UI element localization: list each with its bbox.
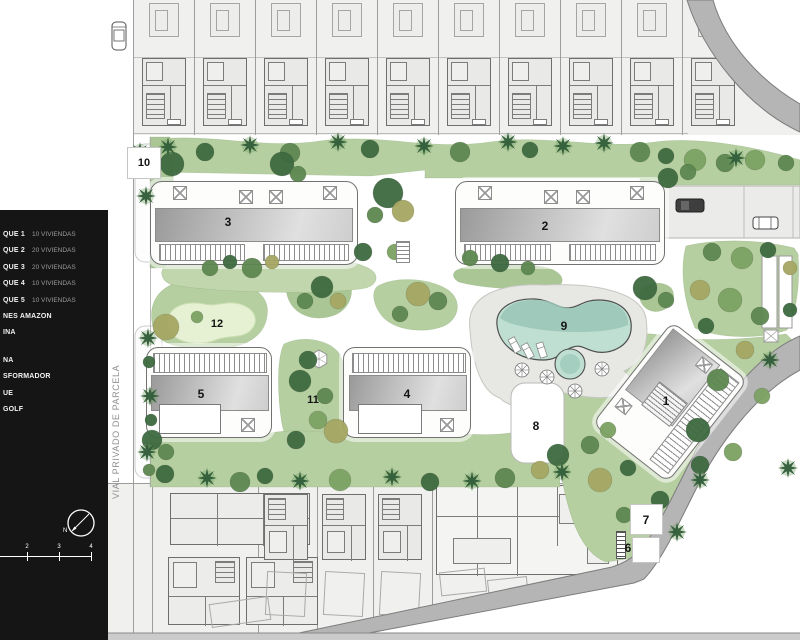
tree-icon [324,419,348,443]
tree-icon [707,369,729,391]
stairs-icon [396,241,410,263]
palm-icon [197,468,217,488]
tree-icon [581,436,599,454]
legend-item-detail: 20 VIVIENDAS [32,264,76,271]
tree-icon [731,247,753,269]
palm-icon [552,462,572,482]
tree-icon [778,155,794,171]
tree-icon [329,469,351,491]
legend-item: SFORMADOR [3,373,76,389]
tree-icon [242,258,262,278]
palm-icon [140,386,160,406]
map-label-5: 5 [198,387,205,401]
map-label-2: 2 [542,219,549,233]
legend-item: UE [3,390,76,406]
tree-icon [145,414,157,426]
legend-item-name: NA [3,357,14,364]
palm-icon [690,470,710,490]
tree-icon [547,444,569,466]
vegetation-layer [0,0,800,640]
tree-icon [630,142,650,162]
palm-icon [158,137,178,157]
legend-item: QUE 510 VIVIENDAS [3,297,76,313]
palm-icon [760,350,780,370]
tree-icon [196,143,214,161]
tree-icon [754,388,770,404]
tree-icon [491,254,509,272]
map-label-8: 8 [533,419,540,433]
legend-item-detail: 10 VIVIENDAS [32,280,76,287]
tree-icon [299,351,317,369]
map-label-10: 10 [138,157,150,169]
tree-icon [143,356,155,368]
tree-icon [367,207,383,223]
legend-item: NES AMAZON [3,313,76,329]
tree-icon [143,464,155,476]
tree-icon [495,468,515,488]
marker-box-6 [632,537,660,563]
legend-item-name: QUE 5 [3,297,25,304]
tree-icon [745,150,765,170]
map-label-1: 1 [663,394,670,408]
scale-tick-label: 3 [57,544,60,550]
legend-panel: QUE 110 VIVIENDASQUE 220 VIVIENDASQUE 32… [0,210,108,640]
tree-icon [783,261,797,275]
palm-icon [414,136,434,156]
map-label-6: 6 [625,541,632,555]
compass-north-label: N [63,528,67,534]
tree-icon [698,318,714,334]
legend-item-name: QUE 4 [3,280,25,287]
legend-item-name: QUE 3 [3,264,25,271]
tree-icon [531,461,549,479]
tree-icon [429,292,447,310]
tree-icon [690,280,710,300]
legend-item-name: UE [3,390,13,397]
tree-icon [680,164,696,180]
legend-item: GOLF [3,406,76,422]
legend-item: QUE 110 VIVIENDAS [3,231,76,247]
scale-tick-label: 4 [89,544,92,550]
palm-icon [726,148,746,168]
palm-icon [138,328,158,348]
legend-item-detail: 20 VIVIENDAS [32,247,76,254]
palm-icon [667,522,687,542]
map-label-3: 3 [225,215,232,229]
compass-icon: N [63,505,99,541]
legend-item-name: GOLF [3,406,23,413]
tree-icon [588,468,612,492]
tree-icon [191,311,203,323]
tree-icon [317,388,333,404]
tree-icon [658,148,674,164]
legend-list: QUE 110 VIVIENDASQUE 220 VIVIENDASQUE 32… [3,231,76,422]
tree-icon [354,243,372,261]
palm-icon [498,132,518,152]
tree-icon [392,306,408,322]
tree-icon [230,472,250,492]
tree-icon [724,443,742,461]
palm-icon [778,458,798,478]
tree-icon [421,473,439,491]
map-label-7: 7 [643,513,650,527]
palm-icon [462,471,482,491]
tree-icon [736,341,754,359]
palm-icon [382,467,402,487]
tree-icon [309,411,327,429]
tree-icon [158,444,174,460]
map-label-4: 4 [404,387,411,401]
legend-item-name: SFORMADOR [3,373,51,380]
palm-icon [137,442,157,462]
tree-icon [265,255,279,269]
legend-item: QUE 410 VIVIENDAS [3,280,76,296]
tree-icon [406,282,430,306]
tree-icon [202,260,218,276]
tree-icon [760,242,776,258]
tree-icon [289,370,311,392]
legend-item: NA [3,357,76,373]
map-label-11: 11 [307,394,319,406]
trees [142,140,797,523]
legend-item: INA [3,329,76,345]
tree-icon [156,465,174,483]
tree-icon [160,152,184,176]
tree-icon [297,293,313,309]
scale-bar: 234 [0,544,100,566]
tree-icon [718,288,742,312]
tree-icon [658,168,678,188]
legend-item: QUE 220 VIVIENDAS [3,247,76,263]
legend-item-name: QUE 2 [3,247,25,254]
tree-icon [751,307,769,325]
tree-icon [450,142,470,162]
tree-icon [633,276,657,300]
scale-tick-label: 2 [25,544,28,550]
tree-icon [686,418,710,442]
palm-icon [240,135,260,155]
palm-icon [553,136,573,156]
tree-icon [311,276,333,298]
tree-icon [522,142,538,158]
tree-icon [153,314,179,340]
legend-item-detail: 10 VIVIENDAS [32,231,76,238]
palm-icon [594,133,614,153]
legend-item-name: INA [3,329,16,336]
tree-icon [521,261,535,275]
tree-icon [287,431,305,449]
palm-icon [328,132,348,152]
map-label-9: 9 [561,319,568,333]
legend-item-detail: 10 VIVIENDAS [32,297,76,304]
map-label-12: 12 [211,318,223,330]
site-plan-canvas: 123456789101112 VIAL PRIVADO DE PARCELA … [0,0,800,640]
tree-icon [330,293,346,309]
tree-icon [290,166,306,182]
tree-icon [257,468,273,484]
tree-icon [462,250,478,266]
tree-icon [783,303,797,317]
legend-item-name: QUE 1 [3,231,25,238]
tree-icon [620,460,636,476]
legend-item-name: NES AMAZON [3,313,52,320]
legend-item: QUE 320 VIVIENDAS [3,264,76,280]
tree-icon [223,255,237,269]
tree-icon [392,200,414,222]
palm-icon [136,186,156,206]
road-name-label: VIAL PRIVADO DE PARCELA [111,333,125,499]
tree-icon [703,243,721,261]
tree-icon [600,422,616,438]
tree-icon [658,292,674,308]
palm-icon [290,471,310,491]
tree-icon [361,140,379,158]
